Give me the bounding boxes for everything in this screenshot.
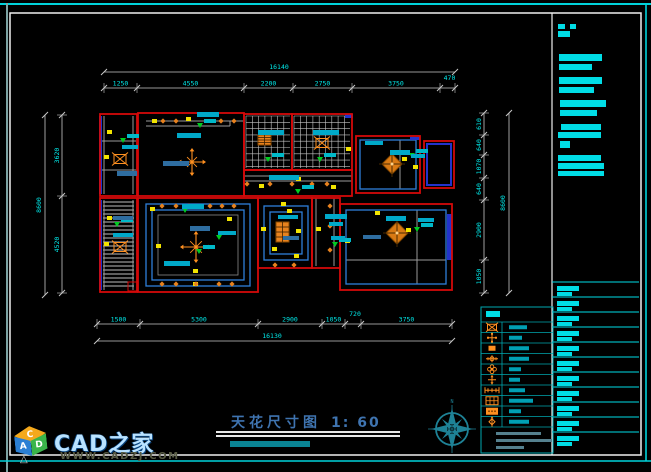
dimension-text: 1050 [475,269,483,285]
title-block-field-bar [557,391,579,396]
downlight-symbol [291,262,296,267]
spotlight-symbol [406,228,411,232]
level-marker [197,119,216,128]
room-label-bar [197,112,219,117]
spotlight-symbol [107,216,112,220]
room-label-bar [411,154,425,158]
title-block-field-bar [557,322,572,326]
downlight-symbol [267,181,272,186]
title-block-field-bar [557,307,572,311]
crosshair-lamp-icon [486,355,498,362]
downlight-symbol [244,181,249,186]
room-label-bar [331,236,345,240]
room-label-bar [269,175,299,180]
room-label-bar [122,145,138,149]
title-underline [216,431,400,433]
drawing-canvas[interactable]: 1250455022002750375047016140150053002900… [0,0,651,472]
dimension-text: 2200 [261,80,277,88]
title-block-field-bar [557,361,579,366]
legend-label-bar [509,378,520,382]
dimension-text: 640 [475,139,483,151]
legend-note-bar [496,432,541,435]
title-block-text-bar [560,100,606,107]
downlight-symbol [327,203,332,208]
downlight-symbol [272,262,277,267]
title-block-field-bar [557,292,572,296]
title-block [552,24,639,446]
room-label-bar [190,226,210,231]
level-marker [317,153,336,162]
dimension-text: 720 [349,310,361,318]
title-block-field-bar [557,367,572,371]
room-label-bar [278,215,298,219]
level-marker [265,153,284,162]
title-block-text-bar [561,124,601,130]
tick-line-icon [485,387,499,393]
room-label-bar [117,171,137,176]
title-block-text-bar [559,87,594,93]
title-block-field-bar [557,376,579,381]
legend-label-bar [509,346,529,350]
title-block-field-bar [557,421,579,426]
title-block-field-bar [557,316,579,321]
title-block-field-bar [557,337,572,341]
drawing-scale-text: 1: 60 [331,415,381,431]
diamond-arrow-icon [489,416,495,427]
title-block-field-bar [557,406,579,411]
dimension-text: 16140 [269,63,289,71]
level-marker [196,245,215,254]
spotlight-symbol [287,209,292,213]
subtitle-bar [230,441,310,447]
grid-fixture-symbol [258,135,271,145]
flower-lamp-icon [488,365,497,374]
room-label-bar [418,218,434,222]
dimension-text: 1070 [475,159,483,175]
dimension-text: 1500 [111,316,127,324]
compass-north-label: N [450,399,453,405]
legend-label-bar [509,367,521,371]
dimension-text: 8600 [499,195,507,211]
downlight-symbol [231,118,236,123]
level-marker [295,185,314,194]
room-label-bar [163,161,189,166]
dimension-text: 2900 [282,316,298,324]
dimension-text: 16130 [262,332,282,340]
spotlight-symbol [346,147,351,151]
room-label-bar [313,130,339,135]
dimension-text: 2900 [475,222,483,238]
legend-label-bar [509,325,527,329]
title-block-text-bar [560,110,597,116]
room-label-bar [283,236,299,240]
legend-label-bar [509,336,522,340]
legend-note-bar [496,439,552,442]
legend-label-bar [509,420,529,424]
title-block-text-bar [558,132,601,138]
cad-drawing-screen: 1250455022002750375047016140150053002900… [0,0,651,472]
dimension-text: 2750 [315,80,331,88]
title-block-field-bar [557,397,572,401]
crossed-box-symbol [112,153,128,166]
title-block-text-bar [559,64,592,70]
spotlight-symbol [281,202,286,206]
logo-cube-icon: C A D [10,424,52,464]
legend-label-bar [509,357,529,361]
title-block-text-bar [558,31,570,37]
legend-label-bar [509,388,525,392]
panel-light-icon [486,408,498,415]
grid-light-icon [486,397,498,405]
drawing-title-text: 天花尺寸图 [231,415,321,431]
legend-label-bar [509,399,533,403]
bay-window [427,144,451,185]
title-block-text-bar [559,54,602,61]
cross-lamp-icon [487,333,497,343]
spotlight-symbol [375,211,380,215]
dimension-text: 640 [475,183,483,195]
room-label-bar [325,214,347,219]
title-block-text-bar [570,24,576,29]
title-block-field-bar [557,382,572,386]
spotlight-symbol [104,242,109,246]
spotlight-symbol [331,185,336,189]
spotlight-symbol [150,207,155,211]
title-block-text-bar [558,24,565,29]
spotlight-symbol [152,119,157,123]
downlight-symbol [160,118,165,123]
crossed-box-icon [486,323,498,332]
dimension-text: 4550 [183,80,199,88]
room-label-bar [113,233,133,237]
spotlight-symbol [107,130,112,134]
dimension-text: 8600 [35,197,43,213]
dimension-text: 1250 [113,80,129,88]
legend-header-bar [486,311,500,317]
cad-home-watermark: C A D CAD之家 WWW.CADZJ.COM [10,424,210,464]
dimension-text: 1050 [326,316,342,324]
dimension-text: 470 [444,74,456,82]
dimension-text: 4520 [53,237,61,253]
crossed-box-symbol [314,137,330,150]
cursor-mark: △ [20,454,28,465]
legend-note-bar [496,446,524,449]
room-label-bar [218,231,236,235]
room-label-bar [258,130,284,135]
legend-label-bar [509,409,521,413]
spotlight-symbol [294,254,299,258]
dimension-text: 5300 [191,316,207,324]
downlight-symbol [173,118,178,123]
title-underline-2 [216,435,400,437]
crossed-box-symbol [112,241,128,254]
title-block-field-bar [557,442,572,446]
logo-url-text: WWW.CADZJ.COM [60,451,180,462]
drawing-title: 天花尺寸图1: 60 [231,412,381,432]
spotlight-symbol [193,269,198,273]
compass-rose-icon: N [428,399,476,453]
dimension-text: 610 [475,118,483,130]
title-block-field-bar [557,436,579,441]
title-block-text-bar [558,155,601,161]
spotlight-symbol [413,165,418,169]
room-label-bar [177,133,201,138]
spotlight-symbol [186,117,191,121]
spotlight-symbol [104,155,109,159]
downlight-symbol [327,247,332,252]
title-block-field-bar [557,352,572,356]
title-block-text-bar [560,141,570,148]
spotlight-symbol [261,227,266,231]
dimension-text: 3750 [399,316,415,324]
title-block-field-bar [557,412,572,416]
room-label-bar [182,204,204,209]
spotlight-symbol [227,217,232,221]
downlight-symbol [324,181,329,186]
title-block-text-bar [558,163,604,169]
spotlight-symbol [402,157,407,161]
title-block-field-bar [557,301,579,306]
spotlight-symbol [259,184,264,188]
title-block-field-bar [557,331,579,336]
title-block-text-bar [559,77,602,84]
room-label-bar [365,141,383,145]
room-label-bar [113,216,133,220]
room-label-bar [329,222,343,226]
title-block-field-bar [557,346,579,351]
dimension-text: 3620 [53,148,61,164]
spotlight-symbol [316,227,321,231]
room-label-bar [386,216,406,221]
downlight-symbol [289,181,294,186]
room-label-bar [390,150,410,155]
spotlight-symbol [296,229,301,233]
downlight-symbol [218,118,223,123]
room-label-bar [164,261,190,266]
title-block-field-bar [557,427,572,431]
window-strip [410,137,420,140]
rect-light-icon [489,346,496,351]
room-label-bar [363,235,381,239]
title-block-text-bar [558,171,604,176]
four-arrow-lamp-icon [488,375,496,385]
title-block-field-bar [557,286,579,291]
spotlight-symbol [272,247,277,251]
dimension-text: 3750 [388,80,404,88]
diamond-lamp-symbol [383,219,411,247]
spotlight-symbol [156,244,161,248]
